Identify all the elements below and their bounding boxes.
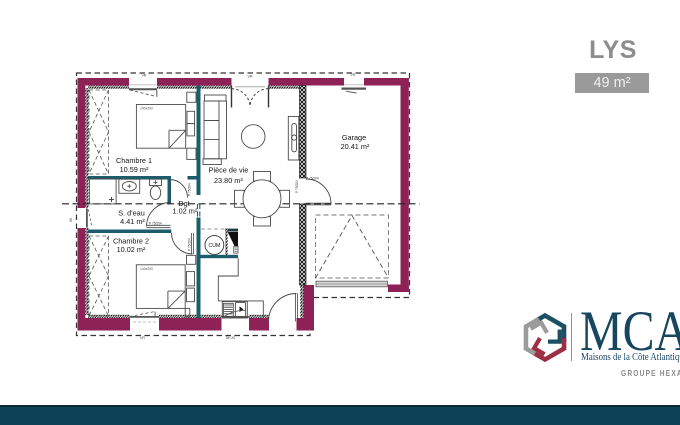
svg-text:4.41 m²: 4.41 m²	[120, 217, 145, 226]
svg-text:20.41 m²: 20.41 m²	[341, 142, 370, 151]
svg-text:VR: VR	[142, 74, 147, 78]
svg-text:P 75/204: P 75/204	[295, 180, 299, 193]
svg-text:140x200: 140x200	[140, 267, 153, 271]
svg-text:1.02 m²: 1.02 m²	[173, 207, 198, 216]
svg-text:P 75/204: P 75/204	[188, 238, 192, 251]
svg-text:DEJO: DEJO	[226, 336, 236, 340]
svg-text:VR: VR	[351, 73, 356, 77]
svg-text:Pièce de vie: Pièce de vie	[209, 166, 249, 175]
svg-text:Chambre 1: Chambre 1	[116, 156, 152, 165]
svg-text:P 75/204: P 75/204	[149, 222, 162, 226]
svg-text:VR: VR	[248, 75, 253, 79]
svg-text:CUM: CUM	[208, 243, 220, 249]
svg-text:P 75/204: P 75/204	[188, 183, 192, 196]
svg-text:140x200: 140x200	[140, 107, 153, 111]
svg-text:23.80 m²: 23.80 m²	[214, 176, 243, 185]
svg-text:Garage: Garage	[342, 133, 366, 142]
svg-text:10.02 m²: 10.02 m²	[117, 245, 146, 254]
svg-text:P 75/204: P 75/204	[306, 177, 319, 181]
svg-text:10.59 m²: 10.59 m²	[120, 165, 149, 174]
svg-text:VR: VR	[140, 336, 145, 340]
svg-text:60: 60	[69, 218, 73, 222]
